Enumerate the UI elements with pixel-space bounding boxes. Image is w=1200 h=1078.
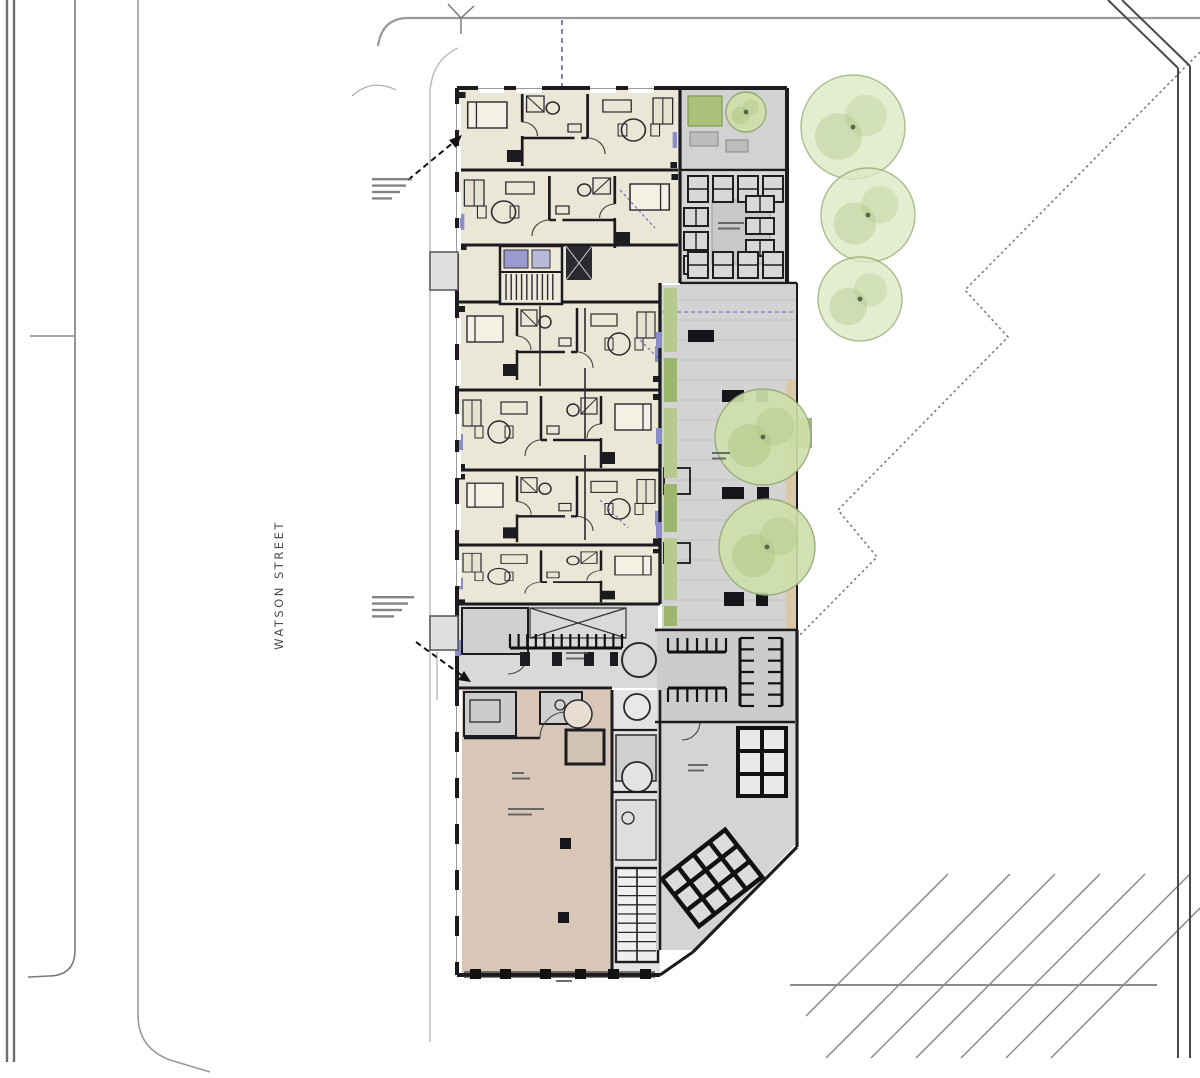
annotation-text-blocks — [372, 178, 414, 618]
door-header — [656, 428, 662, 444]
door-header — [656, 522, 662, 538]
planting-strip-segment — [664, 358, 677, 402]
bike-rack-icon — [668, 638, 726, 652]
mullion — [470, 969, 481, 979]
mullion — [608, 969, 619, 979]
bench — [757, 487, 769, 499]
courtyard-tree-icon — [715, 389, 811, 485]
roof-terrace — [680, 90, 787, 170]
annotation-text-block — [372, 178, 412, 200]
bench — [724, 592, 744, 606]
mullion — [500, 969, 511, 979]
planting-strip-segment — [664, 484, 677, 532]
bike-rack-icon — [668, 688, 726, 702]
annotation-text-block — [556, 980, 572, 982]
site-plan-svg: WATSON STREET — [0, 0, 1200, 1078]
planting-strip-segment — [664, 538, 677, 600]
planting-strip-segment — [664, 288, 677, 352]
bench — [722, 487, 744, 499]
core-strip-lower — [612, 690, 660, 975]
column — [558, 912, 569, 923]
terrace-tree-icon — [726, 92, 766, 132]
lounge-area — [657, 722, 795, 950]
door-header — [656, 332, 662, 348]
street-lines-west — [7, 0, 210, 1072]
mullion — [640, 969, 651, 979]
planting-strip-segment — [664, 606, 677, 626]
street-line-north — [352, 4, 1200, 96]
site-trees — [801, 75, 915, 341]
site-tree-icon — [801, 75, 905, 179]
courtyard-tree-icon — [719, 499, 815, 595]
watson-street-label: WATSON STREET — [272, 520, 286, 650]
hatch-lines-southeast — [790, 874, 1200, 1058]
entry-canopy — [430, 252, 458, 290]
site-tree-icon — [821, 168, 915, 262]
stair-lower — [616, 868, 658, 962]
retail-space — [462, 690, 612, 975]
site-tree-icon — [818, 257, 902, 341]
mullion — [575, 969, 586, 979]
site-plan-canvas: WATSON STREET — [0, 0, 1200, 1078]
mullion — [540, 969, 551, 979]
annotation-text-block — [372, 596, 414, 618]
column — [560, 838, 571, 849]
bench — [688, 330, 714, 342]
planting-strip — [664, 288, 677, 626]
terrace-tree-icon — [726, 92, 766, 132]
skylight-grid — [738, 728, 786, 796]
planting-strip-segment — [664, 408, 677, 478]
entry-canopy — [430, 616, 458, 650]
planter-square — [688, 96, 722, 126]
